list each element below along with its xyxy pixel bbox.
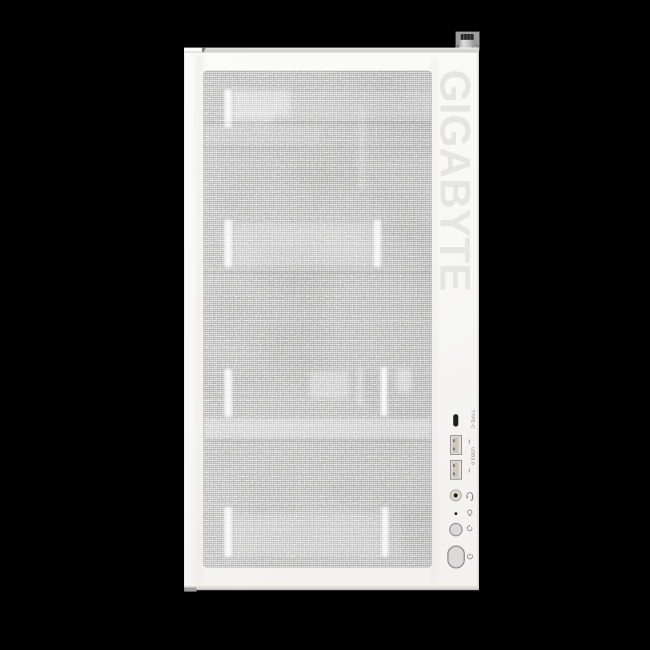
svg-text:GIGABYTE: GIGABYTE xyxy=(431,70,479,292)
svg-text:TYPE-C: TYPE-C xyxy=(471,410,476,429)
svg-text:USB3.0: USB3.0 xyxy=(471,447,476,465)
